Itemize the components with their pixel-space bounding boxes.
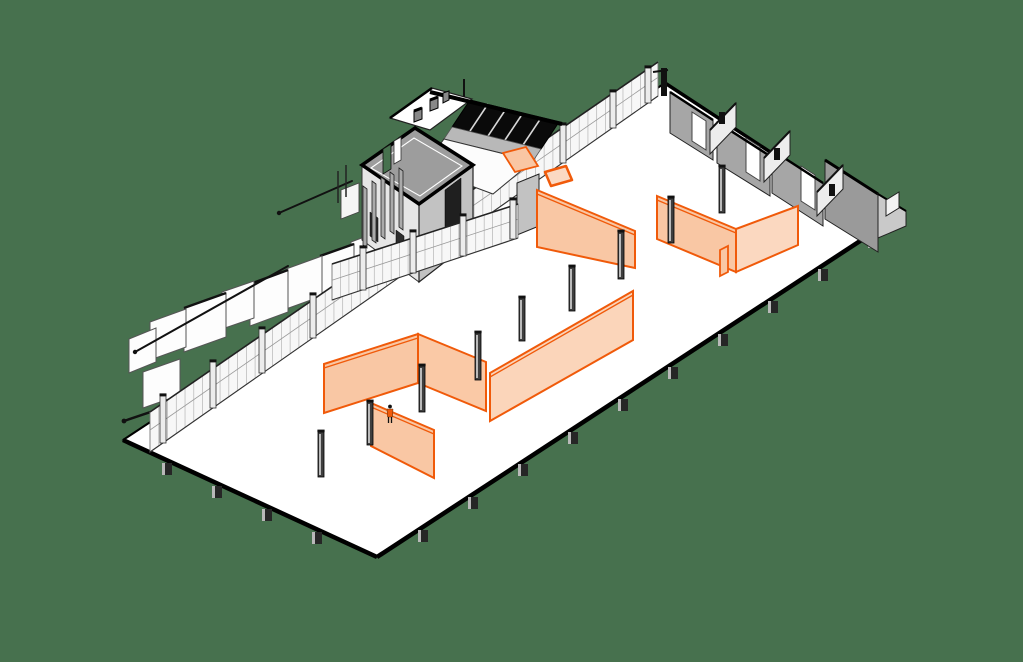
glazing-post-cap xyxy=(310,292,317,295)
steel-column-highlight xyxy=(669,200,671,241)
support-pier-face xyxy=(668,367,671,379)
glazing-post xyxy=(410,232,416,273)
axon-drawing-canvas xyxy=(0,0,1023,662)
steel-column-cap xyxy=(474,331,481,334)
support-pier-face xyxy=(212,486,215,498)
steel-column xyxy=(419,366,425,412)
glazing-post-cap xyxy=(410,229,417,232)
steel-column-highlight xyxy=(720,169,722,211)
steel-column xyxy=(668,198,674,243)
support-pier-face xyxy=(768,301,771,313)
steel-column-cap xyxy=(718,165,725,168)
facade-louver xyxy=(390,172,394,234)
steel-column xyxy=(318,432,324,477)
support-pier-face xyxy=(518,464,521,476)
steel-column xyxy=(519,298,525,341)
corner-post xyxy=(661,68,667,96)
support-pier-face xyxy=(418,530,421,542)
glazing-post-cap xyxy=(460,213,467,216)
roof-opening-white xyxy=(394,137,401,164)
glazing-post xyxy=(610,92,616,128)
facade-louver xyxy=(363,186,367,248)
steel-column-highlight xyxy=(520,300,522,339)
glazing-post-cap xyxy=(645,65,652,68)
glazing-post-cap xyxy=(360,245,367,248)
steel-column-cap xyxy=(518,296,525,299)
steel-column-cap xyxy=(418,364,425,367)
steel-column-highlight xyxy=(319,434,321,475)
edge-post-tick xyxy=(719,112,725,124)
glazing-post-cap xyxy=(510,197,517,200)
glazing-post-cap xyxy=(610,89,617,92)
edge-post-tick xyxy=(774,148,780,160)
core-gray-stub-wall xyxy=(517,174,539,235)
glazing-post xyxy=(259,329,265,373)
edge-post-tick xyxy=(829,184,835,196)
rail-end-dot xyxy=(122,419,127,424)
rail-end-dot xyxy=(277,211,281,215)
glazing-post xyxy=(160,396,166,443)
glazing-post-cap xyxy=(210,359,217,362)
steel-column-highlight xyxy=(619,234,621,277)
support-pier-face xyxy=(262,509,265,521)
steel-column xyxy=(618,232,624,279)
glazing-post xyxy=(360,248,366,290)
facade-louver xyxy=(399,168,403,230)
glazing-post xyxy=(210,362,216,408)
glazing-post-cap xyxy=(259,326,266,329)
roof-opening-seethrough xyxy=(383,144,391,174)
steel-column xyxy=(367,402,373,445)
steel-column-cap xyxy=(366,400,373,403)
steel-column-cap xyxy=(568,265,575,268)
architectural-axonometric-diagram xyxy=(0,0,1023,662)
support-pier-face xyxy=(162,463,165,475)
support-pier-face xyxy=(312,532,315,544)
steel-column xyxy=(719,167,725,213)
steel-column-cap xyxy=(667,196,674,199)
rail-end-dot xyxy=(133,350,137,354)
steel-column xyxy=(475,333,481,380)
glazing-post xyxy=(310,295,316,338)
glazing-post xyxy=(645,68,651,103)
steel-column-highlight xyxy=(476,335,478,378)
support-pier-face xyxy=(618,399,621,411)
glazing-post xyxy=(560,125,566,163)
steel-column-cap xyxy=(317,430,324,433)
steel-column-highlight xyxy=(420,368,422,410)
glazing-post xyxy=(460,216,466,256)
human-figure-head xyxy=(388,405,392,409)
steel-column-highlight xyxy=(570,269,572,309)
steel-column xyxy=(569,267,575,311)
human-figure-torso xyxy=(387,409,393,417)
facade-louver xyxy=(381,177,385,239)
glazing-post xyxy=(510,200,516,239)
steel-column-cap xyxy=(617,230,624,233)
support-pier-face xyxy=(468,497,471,509)
orange-partition-stub xyxy=(720,246,728,276)
support-pier-face xyxy=(818,269,821,281)
glazing-post-cap xyxy=(160,393,167,396)
steel-column-highlight xyxy=(368,404,370,443)
support-pier-face xyxy=(568,432,571,444)
facade-louver xyxy=(372,181,376,243)
support-pier-face xyxy=(718,334,721,346)
